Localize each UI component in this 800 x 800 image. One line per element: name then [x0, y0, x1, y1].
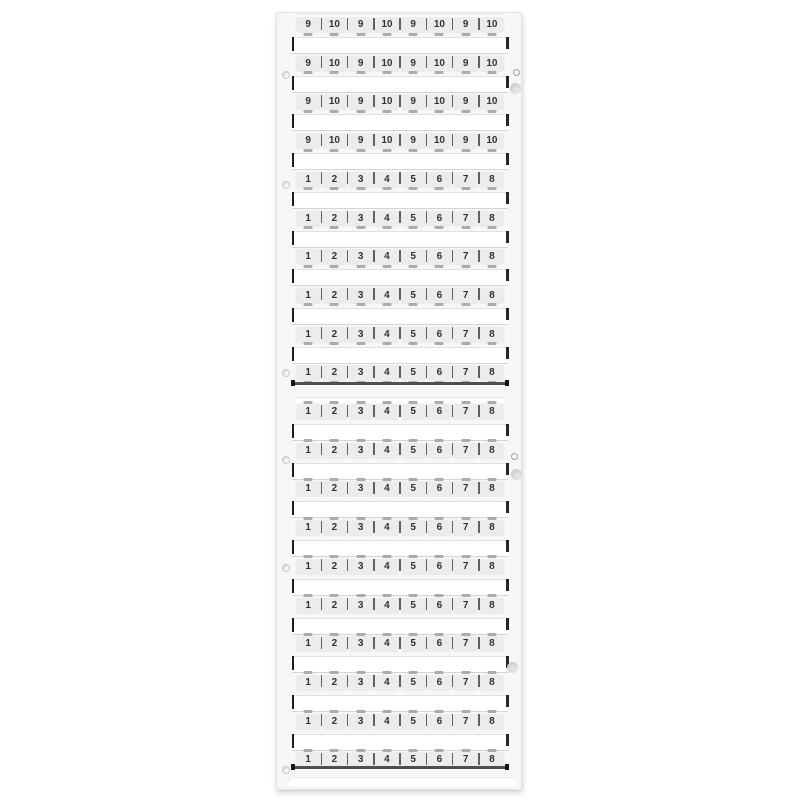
lower-half-bottom-edge [293, 766, 507, 769]
snap-stud [510, 83, 521, 94]
marker-row: 12345678 [277, 675, 521, 714]
marker-tag: 1 [296, 714, 321, 729]
marker-tag: 4 [374, 559, 399, 574]
marker-tag-strip: 12345678 [295, 443, 505, 458]
pin-hole [513, 69, 520, 76]
alignment-hole [282, 564, 290, 572]
marker-tag-strip: 12345678 [295, 675, 505, 690]
marker-tag: 8 [479, 404, 504, 419]
marker-tag: 1 [296, 636, 321, 651]
marker-tag: 8 [479, 598, 504, 613]
marker-row: 12345678 [277, 714, 521, 753]
marker-tag: 5 [401, 404, 426, 419]
marker-tag: 3 [348, 714, 373, 729]
marker-tag: 3 [348, 636, 373, 651]
marker-tag: 4 [374, 598, 399, 613]
marker-tag: 7 [453, 598, 478, 613]
marker-tag: 1 [296, 675, 321, 690]
marker-row: 12345678 [277, 404, 521, 443]
marker-window [292, 424, 508, 441]
marker-tag: 6 [427, 520, 452, 535]
alignment-hole [282, 456, 290, 464]
marker-tag: 6 [427, 636, 452, 651]
marker-tag-strip: 12345678 [295, 559, 505, 574]
snap-stud [511, 469, 522, 480]
marker-tag: 4 [374, 404, 399, 419]
marker-tag: 6 [427, 481, 452, 496]
marker-tag: 1 [296, 481, 321, 496]
marker-tag: 3 [348, 559, 373, 574]
marker-tag-strip: 12345678 [295, 520, 505, 535]
marker-tag: 2 [322, 675, 347, 690]
marker-row: 12345678 [277, 559, 521, 598]
marker-window [292, 501, 508, 518]
marker-row: 12345678 [277, 443, 521, 482]
marker-row: 12345678 [277, 598, 521, 637]
marker-tag: 8 [479, 714, 504, 729]
marker-tag: 2 [322, 714, 347, 729]
marker-tag: 5 [401, 481, 426, 496]
marker-tag: 2 [322, 559, 347, 574]
marker-tag: 7 [453, 520, 478, 535]
marker-tag: 1 [296, 443, 321, 458]
marker-window [292, 695, 508, 712]
marker-tag: 1 [296, 404, 321, 419]
marker-row: 12345678 [277, 636, 521, 675]
marker-tag: 7 [453, 404, 478, 419]
marker-tag: 5 [401, 598, 426, 613]
alignment-hole [282, 369, 290, 377]
marker-tag: 6 [427, 404, 452, 419]
marker-window [292, 734, 508, 751]
marker-tag-strip: 12345678 [295, 481, 505, 496]
marker-tag: 4 [374, 481, 399, 496]
marker-tag: 8 [479, 520, 504, 535]
marker-row: 12345678 [277, 752, 521, 791]
marker-tag: 6 [427, 443, 452, 458]
marker-tag: 5 [401, 559, 426, 574]
marker-tag: 4 [374, 675, 399, 690]
marker-row: 12345678 [277, 481, 521, 520]
marker-tag-strip: 12345678 [295, 598, 505, 613]
marker-tag: 4 [374, 714, 399, 729]
marker-tag-strip: 12345678 [295, 714, 505, 729]
pin-hole [511, 453, 518, 460]
marker-tag: 2 [322, 443, 347, 458]
marker-tag: 2 [322, 481, 347, 496]
marker-tag: 5 [401, 636, 426, 651]
marker-tag: 7 [453, 559, 478, 574]
marker-tag: 2 [322, 636, 347, 651]
marker-tag: 2 [322, 598, 347, 613]
marker-tag: 6 [427, 559, 452, 574]
marker-tag: 8 [479, 675, 504, 690]
marker-tag: 5 [401, 714, 426, 729]
marker-tag: 3 [348, 404, 373, 419]
marker-tag: 4 [374, 520, 399, 535]
marker-tag: 6 [427, 675, 452, 690]
upper-half-bottom-edge [293, 382, 507, 385]
marker-tag-strip: 12345678 [295, 404, 505, 419]
marker-card: 9109109109109109109109109109109109109109… [276, 12, 522, 790]
alignment-hole [282, 181, 290, 189]
snap-stud [507, 662, 518, 673]
marker-tag: 8 [479, 443, 504, 458]
marker-window [292, 656, 508, 673]
marker-tag: 8 [479, 481, 504, 496]
marker-tag: 7 [453, 481, 478, 496]
marker-tag: 2 [322, 520, 347, 535]
marker-tag: 6 [427, 714, 452, 729]
marker-tag: 3 [348, 675, 373, 690]
marker-tag: 7 [453, 675, 478, 690]
alignment-hole [282, 766, 290, 774]
marker-tag-strip: 12345678 [295, 636, 505, 651]
card-lower-half: 1234567812345678123456781234567812345678… [277, 13, 521, 789]
marker-tag: 5 [401, 675, 426, 690]
marker-tag: 3 [348, 520, 373, 535]
marker-tag: 7 [453, 443, 478, 458]
marker-tag: 7 [453, 636, 478, 651]
marker-tag: 4 [374, 636, 399, 651]
marker-tag: 1 [296, 559, 321, 574]
alignment-hole [282, 71, 290, 79]
marker-tag: 1 [296, 520, 321, 535]
marker-window [292, 540, 508, 557]
marker-window [292, 463, 508, 480]
marker-tag: 8 [479, 559, 504, 574]
marker-tag: 5 [401, 520, 426, 535]
marker-tag: 5 [401, 443, 426, 458]
marker-tag: 1 [296, 598, 321, 613]
marker-window [292, 579, 508, 596]
marker-tag: 8 [479, 636, 504, 651]
marker-tag: 6 [427, 598, 452, 613]
marker-tag: 3 [348, 598, 373, 613]
marker-tag: 3 [348, 443, 373, 458]
marker-tag: 3 [348, 481, 373, 496]
marker-tag: 4 [374, 443, 399, 458]
marker-window [292, 618, 508, 635]
marker-tag: 2 [322, 404, 347, 419]
marker-tag: 7 [453, 714, 478, 729]
marker-row: 12345678 [277, 520, 521, 559]
